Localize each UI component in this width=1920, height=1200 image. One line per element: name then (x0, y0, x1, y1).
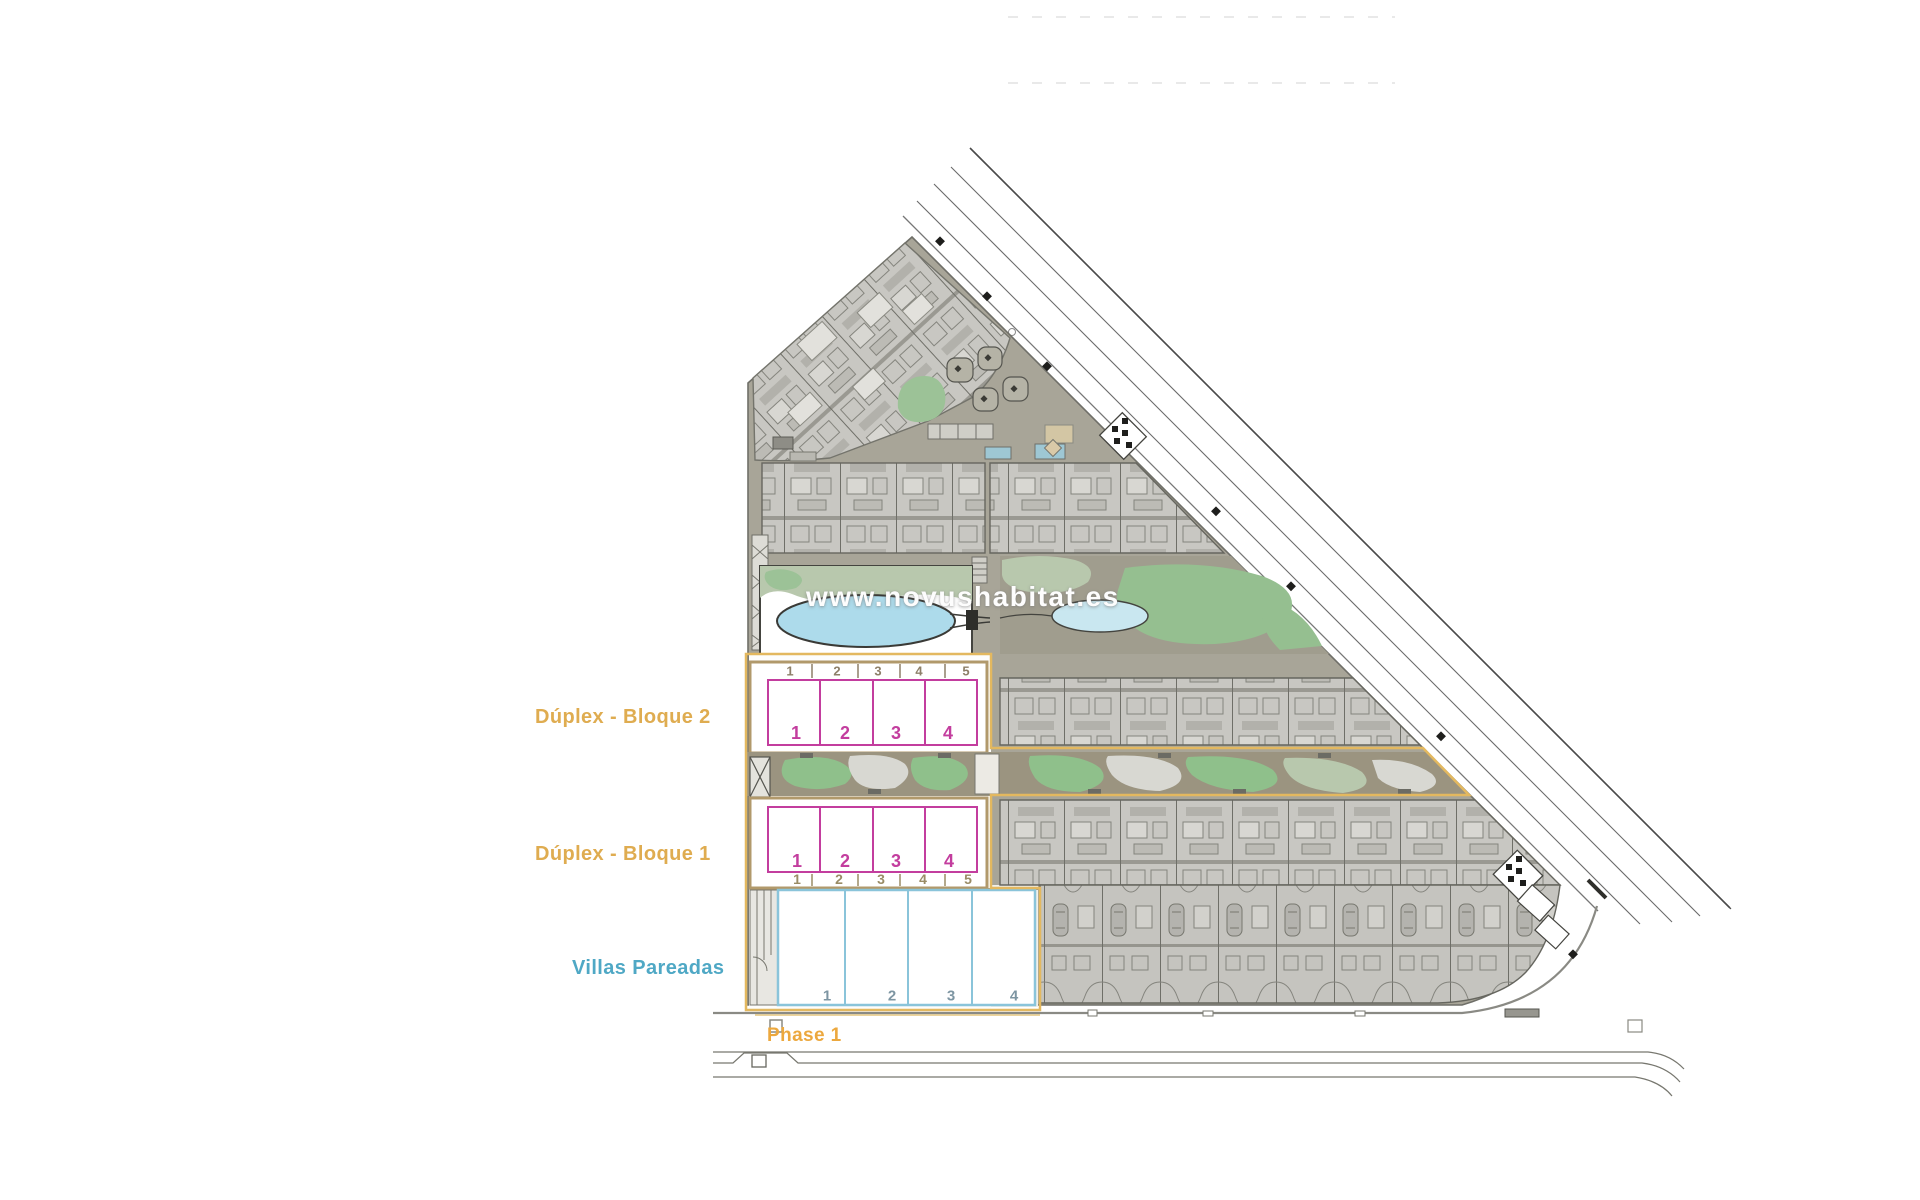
unit-number: 2 (833, 665, 840, 678)
site-plan-page: www.novushabitat.es Dúplex - Bloque 2 Dú… (0, 0, 1920, 1200)
label-villas-pareadas: Villas Pareadas (572, 957, 724, 980)
unit-number: 4 (915, 665, 922, 678)
unit-number: 3 (877, 872, 885, 886)
unit-number: 1 (793, 872, 801, 886)
unit-number: 2 (840, 852, 850, 870)
unit-number: 1 (791, 724, 801, 742)
townhouse-row (1040, 885, 1560, 1003)
unit-number: 3 (947, 989, 955, 1004)
duplex-block1-row (750, 798, 1560, 888)
unit-number: 4 (944, 852, 954, 870)
unit-number: 1 (792, 852, 802, 870)
unit-number: 5 (964, 872, 972, 886)
label-duplex-bloque-2: Dúplex - Bloque 2 (535, 706, 711, 729)
label-duplex-bloque-1: Dúplex - Bloque 1 (535, 843, 711, 866)
villas-units (778, 890, 1035, 1005)
unit-number: 5 (962, 665, 969, 678)
unit-number: 4 (1010, 989, 1018, 1004)
label-phase-1: Phase 1 (767, 1025, 842, 1047)
unit-number: 2 (840, 724, 850, 742)
unit-number: 4 (943, 724, 953, 742)
garden-strip (747, 752, 1471, 797)
unit-number: 4 (919, 872, 927, 886)
villas-row (750, 885, 1560, 1005)
unit-number: 1 (786, 665, 793, 678)
unit-number: 3 (874, 665, 881, 678)
unit-number: 3 (891, 724, 901, 742)
unit-number: 1 (823, 989, 831, 1004)
watermark: www.novushabitat.es (806, 581, 1120, 613)
unit-number: 2 (835, 872, 843, 886)
unit-number: 3 (891, 852, 901, 870)
faint-survey-lines (1008, 17, 1395, 83)
unit-number: 2 (888, 989, 896, 1004)
apartment-row-upper (762, 463, 1224, 553)
